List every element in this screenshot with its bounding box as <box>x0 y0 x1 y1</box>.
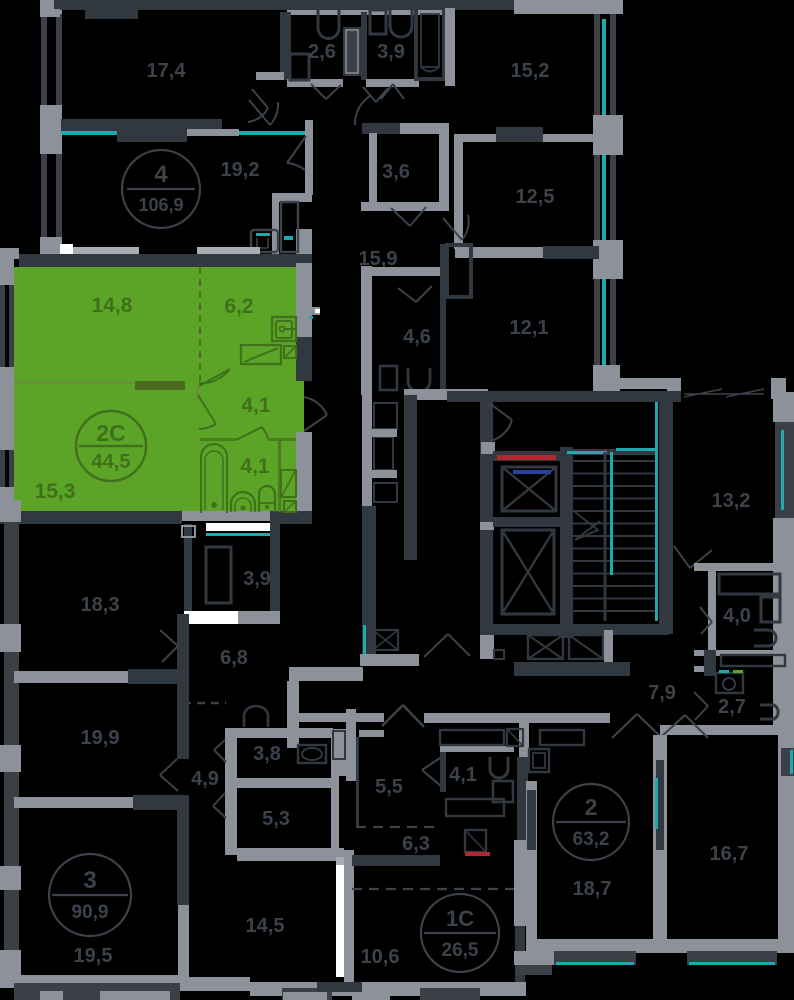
svg-text:3,8: 3,8 <box>253 743 281 765</box>
svg-text:6,2: 6,2 <box>224 295 253 318</box>
svg-text:6,3: 6,3 <box>402 833 430 855</box>
svg-text:3,9: 3,9 <box>377 41 405 63</box>
svg-text:4,1: 4,1 <box>240 455 270 478</box>
svg-text:2: 2 <box>585 794 598 820</box>
svg-text:3,9: 3,9 <box>243 568 271 590</box>
svg-text:16,7: 16,7 <box>710 843 749 865</box>
svg-text:10,6: 10,6 <box>361 946 400 968</box>
svg-text:2,6: 2,6 <box>308 41 336 63</box>
svg-text:13,2: 13,2 <box>712 490 751 512</box>
svg-text:90,9: 90,9 <box>72 902 109 923</box>
svg-text:14,8: 14,8 <box>92 294 133 317</box>
svg-text:26,5: 26,5 <box>442 940 479 961</box>
svg-text:15,2: 15,2 <box>511 60 550 82</box>
svg-text:12,1: 12,1 <box>510 317 549 339</box>
svg-text:1С: 1С <box>446 906 474 931</box>
svg-text:106,9: 106,9 <box>138 195 183 215</box>
svg-text:18,3: 18,3 <box>81 594 120 616</box>
svg-text:4,0: 4,0 <box>723 605 751 627</box>
svg-text:18,7: 18,7 <box>573 878 612 900</box>
svg-text:15,3: 15,3 <box>35 480 76 503</box>
svg-text:5,5: 5,5 <box>375 776 403 798</box>
svg-text:63,2: 63,2 <box>573 829 610 850</box>
svg-text:4: 4 <box>154 161 168 188</box>
svg-text:19,2: 19,2 <box>221 159 260 181</box>
svg-text:3,6: 3,6 <box>382 161 410 183</box>
svg-text:4,9: 4,9 <box>191 768 219 790</box>
svg-text:5,3: 5,3 <box>262 808 290 830</box>
svg-text:14,5: 14,5 <box>246 915 285 937</box>
svg-text:17,4: 17,4 <box>147 60 187 82</box>
svg-text:2,7: 2,7 <box>718 696 746 718</box>
svg-text:19,5: 19,5 <box>74 945 113 967</box>
svg-text:2С: 2С <box>96 420 125 446</box>
svg-text:6,8: 6,8 <box>220 647 248 669</box>
svg-text:12,5: 12,5 <box>516 186 555 208</box>
svg-text:7,9: 7,9 <box>648 682 676 704</box>
svg-text:19,9: 19,9 <box>81 727 120 749</box>
svg-text:4,1: 4,1 <box>449 764 477 786</box>
svg-text:4,1: 4,1 <box>241 394 271 417</box>
svg-text:4,6: 4,6 <box>403 326 431 348</box>
svg-text:3: 3 <box>83 867 96 894</box>
svg-text:44,5: 44,5 <box>92 451 131 473</box>
